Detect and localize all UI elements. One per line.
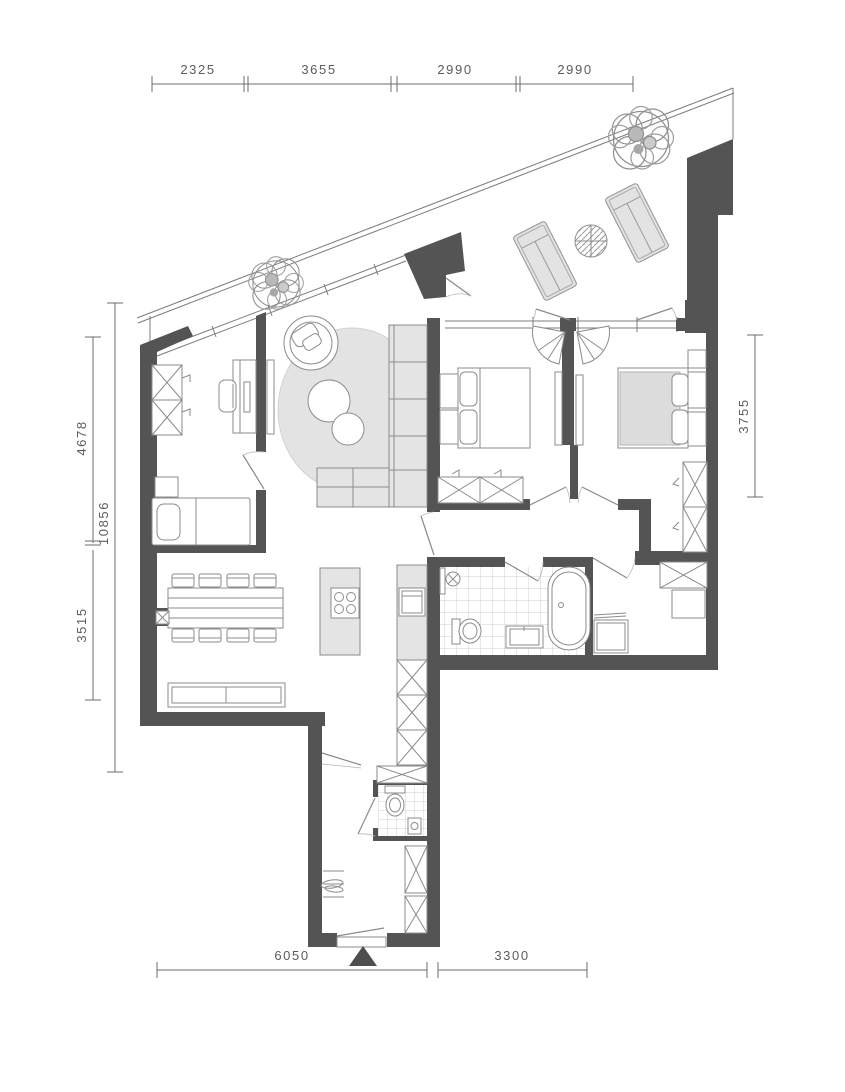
- bathtub: [548, 567, 590, 650]
- entrance-right-stub: [387, 933, 427, 947]
- dim-top-3: 2990: [437, 62, 472, 77]
- bedroom1-door: [530, 487, 570, 505]
- sideboard: [168, 683, 285, 707]
- entrance-left-stub: [322, 933, 337, 947]
- tv-panel-bedroom1: [555, 372, 562, 445]
- terrace-door-bedroom1: [533, 309, 570, 320]
- terrace: [137, 88, 734, 356]
- floor-plan-page: 2325 3655 2990 2990 10856 4678 3515: [0, 0, 845, 1092]
- smallroom-door: [243, 452, 264, 489]
- laundry-door: [593, 558, 635, 578]
- laundry-closet-x: [660, 562, 707, 588]
- living-bottom-wall: [140, 712, 325, 726]
- south-wall: [427, 655, 718, 670]
- dim-top-4: 2990: [557, 62, 592, 77]
- nightstand-2c: [688, 412, 706, 446]
- bedroom2-top-right-jut: [685, 300, 718, 333]
- smallroom-partition-upper: [256, 312, 266, 452]
- dim-right-side: 3755: [736, 398, 751, 433]
- hanging-egg-chair: [284, 316, 338, 370]
- dim-left-overall: 10856: [96, 501, 111, 545]
- dim-left-upper: 4678: [74, 420, 89, 455]
- dim-bottom-1: 6050: [274, 948, 309, 963]
- nightstand-1b: [440, 410, 458, 444]
- ceiling-fan-icon-2: [577, 326, 609, 364]
- duvet: [620, 372, 680, 445]
- laundry-room: [594, 562, 707, 653]
- bedroom-partition: [562, 331, 574, 445]
- wall-oven-icon: [399, 588, 425, 616]
- desk-chair: [219, 380, 236, 412]
- nightstand-1a: [440, 374, 458, 408]
- right-wall: [706, 333, 718, 670]
- washing-machine: [594, 613, 628, 653]
- wc-closet-x: [377, 766, 427, 783]
- nightstand-2a: [688, 350, 706, 368]
- dining-chairs-top: [172, 574, 276, 587]
- kitchen-tall-cabinets: [397, 565, 427, 765]
- wc-door: [358, 798, 375, 836]
- toilet: [452, 619, 481, 644]
- cooktop-icon: [331, 588, 359, 618]
- sun-lounger-1: [513, 221, 578, 301]
- desk-monitor: [244, 382, 250, 412]
- smallroom-wardrobe: [152, 365, 190, 435]
- smallroom-bottom-wall: [157, 545, 266, 553]
- hall-inner-door: [322, 753, 361, 768]
- wc-bottom-wall: [373, 836, 427, 841]
- double-bed-2: [618, 368, 688, 448]
- bathroom-top-wall-left: [440, 557, 505, 567]
- living-room: [278, 316, 427, 507]
- ceiling-fan-icon-1: [533, 326, 565, 364]
- corridor-end-wall: [639, 510, 651, 555]
- dining-chairs-bottom: [172, 629, 276, 642]
- dimension-left-overall: 10856: [96, 303, 123, 772]
- laundry-cabinet: [672, 590, 705, 618]
- wc-toilet: [386, 794, 404, 816]
- terrace-right-wall: [687, 139, 733, 300]
- window-stub-right: [676, 318, 687, 331]
- column-x: [156, 611, 169, 624]
- wc-left-stub-bottom: [373, 828, 378, 841]
- dimension-right: 3755: [736, 335, 763, 497]
- dim-left-lower: 3515: [74, 607, 89, 642]
- dining-table: [168, 588, 283, 628]
- kitchen: [320, 565, 427, 765]
- hall-closet-x-2: [405, 896, 427, 933]
- tv-panel-bedroom2: [576, 375, 583, 445]
- small-room: [152, 360, 274, 545]
- single-bed: [152, 498, 250, 545]
- wc-cistern: [385, 786, 405, 793]
- bedroom-1: [438, 326, 565, 503]
- coffee-table-small: [332, 413, 364, 445]
- terrace-door-bedroom2: [637, 308, 677, 320]
- bedroom-bottom-wall-right: [618, 499, 651, 510]
- entrance-door: [337, 928, 386, 966]
- entrance-triangle-icon: [349, 946, 377, 966]
- wardrobe-2: [673, 462, 707, 552]
- bedroom-partition-lower: [570, 445, 578, 499]
- smallroom-partition-lower: [256, 490, 266, 553]
- dim-bottom-2: 3300: [494, 948, 529, 963]
- dining-area: [156, 574, 285, 707]
- dim-top-2: 3655: [301, 62, 336, 77]
- double-bed-1: [458, 368, 530, 448]
- wc-basin: [408, 818, 421, 834]
- washbasin-cabinet: [506, 626, 543, 648]
- floor-plan-drawing: 2325 3655 2990 2990 10856 4678 3515: [0, 0, 845, 1092]
- hall-left-wall: [308, 712, 322, 947]
- nightstand-2b: [688, 372, 706, 408]
- coat-rack: [321, 871, 344, 897]
- corridor-door: [421, 512, 434, 555]
- hall-closet-x-1: [405, 846, 427, 893]
- tv-panel-living: [267, 360, 274, 434]
- dimension-top-chain: 2325 3655 2990 2990: [152, 62, 633, 92]
- terrace-door-living: [446, 278, 471, 297]
- kitchen-island: [320, 568, 360, 655]
- dim-top-1: 2325: [180, 62, 215, 77]
- wardrobe-1: [438, 470, 523, 503]
- terrace-round-table: [575, 225, 607, 257]
- sun-lounger-2: [605, 183, 670, 263]
- terrace-angled-wall: [404, 232, 465, 299]
- bedroom2-door: [578, 487, 618, 505]
- smallroom-nightstand: [155, 477, 178, 497]
- hall-right-wall: [427, 557, 440, 947]
